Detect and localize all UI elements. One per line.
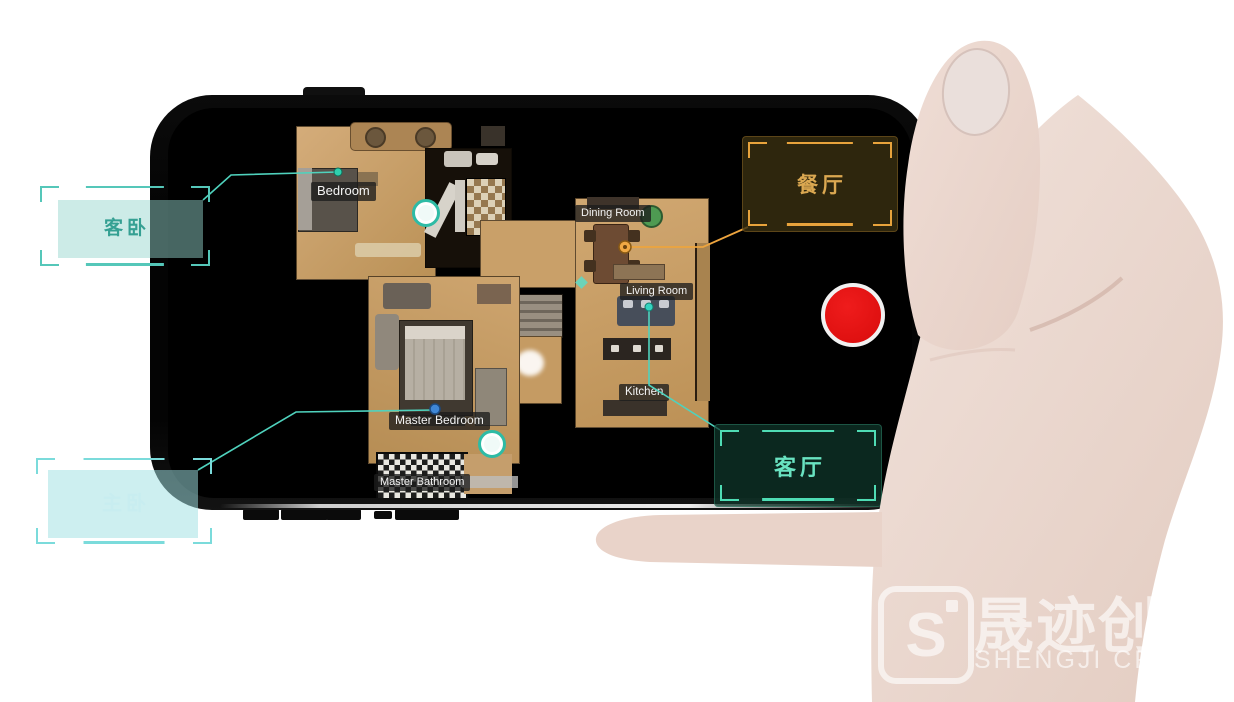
watermark-latin-text: SHENGJI CREA xyxy=(974,646,1172,675)
phone-side-key xyxy=(243,509,279,520)
kitchen-counter xyxy=(603,400,667,416)
bed-pillow xyxy=(405,326,465,339)
label-bar xyxy=(462,476,518,488)
room-label-kitchen[interactable]: Kitchen xyxy=(619,384,669,401)
tv-bench xyxy=(603,338,671,360)
chaise xyxy=(375,314,399,370)
stair-beam xyxy=(455,180,465,232)
callout-label: 主卧 xyxy=(36,458,212,544)
callout-living-room[interactable]: 客厅 xyxy=(712,422,884,509)
chair xyxy=(628,230,640,242)
bath-fixture xyxy=(481,126,505,146)
watermark-logo-icon: S xyxy=(878,586,974,684)
bathroom-floor xyxy=(464,454,512,494)
bath-fixture xyxy=(476,153,498,165)
bed-pillow xyxy=(298,168,312,230)
stool xyxy=(415,127,436,148)
sofa xyxy=(617,296,675,326)
coffee-table xyxy=(613,264,665,280)
sofa xyxy=(383,283,431,309)
phone-side-key xyxy=(281,509,328,520)
callout-label: 餐厅 xyxy=(740,134,900,234)
waypoint-marker[interactable] xyxy=(412,199,440,227)
stool xyxy=(365,127,386,148)
index-finger xyxy=(596,512,882,567)
scene: Bedroom Dining Room Living Room Kitchen … xyxy=(0,0,1234,702)
watermark: S 晟迹创 SHENGJI CREA xyxy=(872,582,1172,694)
room-label-dining-room[interactable]: Dining Room xyxy=(575,205,651,222)
callout-label: 客卧 xyxy=(40,186,210,266)
callout-dining-room[interactable]: 餐厅 xyxy=(740,134,900,234)
floor-plan[interactable]: Bedroom Dining Room Living Room Kitchen … xyxy=(295,118,715,498)
thumbnail xyxy=(940,47,1012,137)
chair xyxy=(584,230,596,242)
room-label-bedroom[interactable]: Bedroom xyxy=(311,182,376,201)
waypoint-marker[interactable] xyxy=(478,430,506,458)
phone-side-key xyxy=(374,511,392,519)
room-label-living-room[interactable]: Living Room xyxy=(620,283,693,300)
callout-label: 客厅 xyxy=(712,422,884,509)
chair xyxy=(584,260,596,272)
callout-guest-bedroom[interactable]: 客卧 xyxy=(40,186,210,266)
thumb-crease xyxy=(1030,278,1122,330)
palm-crease xyxy=(930,349,1015,360)
record-button[interactable] xyxy=(821,283,885,347)
logo-dot xyxy=(946,600,958,612)
phone-side-key xyxy=(395,509,459,520)
bath-fixture xyxy=(444,151,472,167)
rug xyxy=(355,243,421,257)
light-glare xyxy=(516,350,544,376)
room-label-master-bedroom[interactable]: Master Bedroom xyxy=(389,412,490,430)
desk xyxy=(477,284,511,304)
balcony-strip xyxy=(695,243,710,401)
phone-side-key xyxy=(326,509,361,520)
steps xyxy=(516,294,563,338)
room-label-master-bathroom[interactable]: Master Bathroom xyxy=(374,474,470,491)
callout-master-bedroom[interactable]: 主卧 xyxy=(36,458,212,544)
